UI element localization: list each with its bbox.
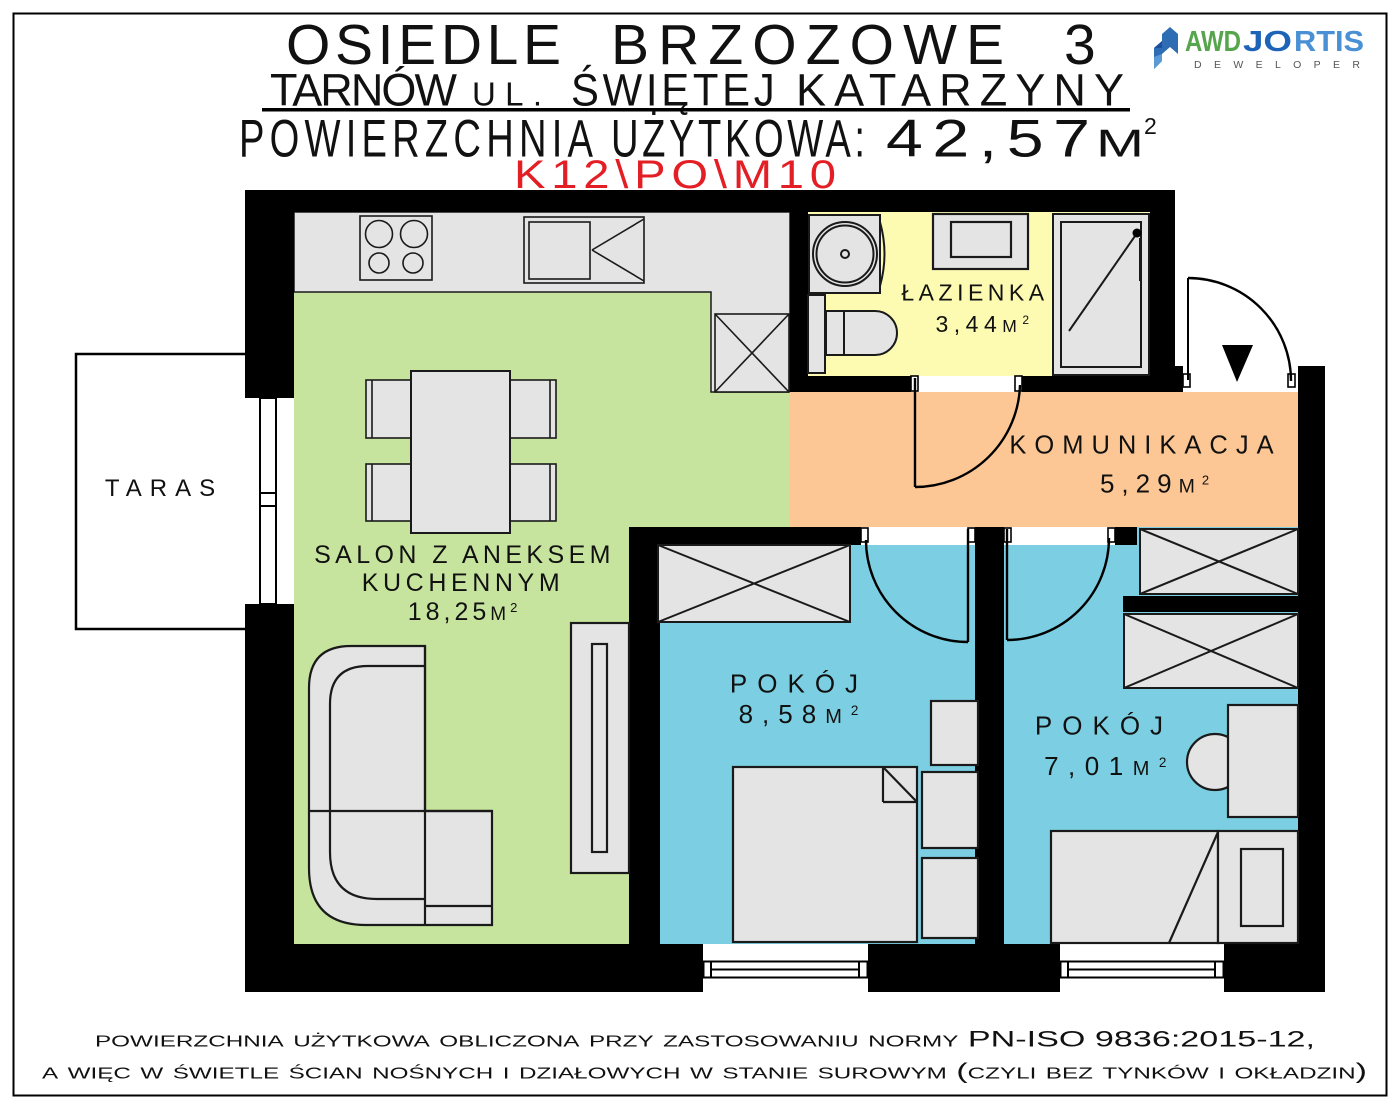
svg-text:TARAS: TARAS — [105, 475, 223, 502]
svg-text:DEWELOPER: DEWELOPER — [1194, 59, 1360, 71]
svg-text:POKÓJ: POKÓJ — [1035, 711, 1173, 741]
svg-text:a więc w świetle ścian nośnych: a więc w świetle ścian nośnych i działow… — [42, 1059, 1367, 1084]
svg-text:M: M — [1096, 123, 1144, 166]
svg-text:JO: JO — [1243, 26, 1292, 58]
svg-text:RTIS: RTIS — [1294, 26, 1364, 58]
svg-text:KUCHENNYM: KUCHENNYM — [362, 569, 565, 597]
svg-text:42,57: 42,57 — [886, 109, 1090, 168]
svg-text:powierzchnia użytkowa obliczon: powierzchnia użytkowa obliczona przy zas… — [95, 1027, 1315, 1052]
svg-text:POKÓJ: POKÓJ — [730, 669, 868, 699]
svg-text:2: 2 — [1144, 113, 1157, 139]
svg-text:KOMUNIKACJA: KOMUNIKACJA — [1009, 432, 1281, 460]
svg-text:SALON Z ANEKSEM: SALON Z ANEKSEM — [314, 541, 615, 569]
svg-text:AWD: AWD — [1185, 26, 1241, 58]
svg-text:ŁAZIENKA: ŁAZIENKA — [901, 280, 1048, 306]
